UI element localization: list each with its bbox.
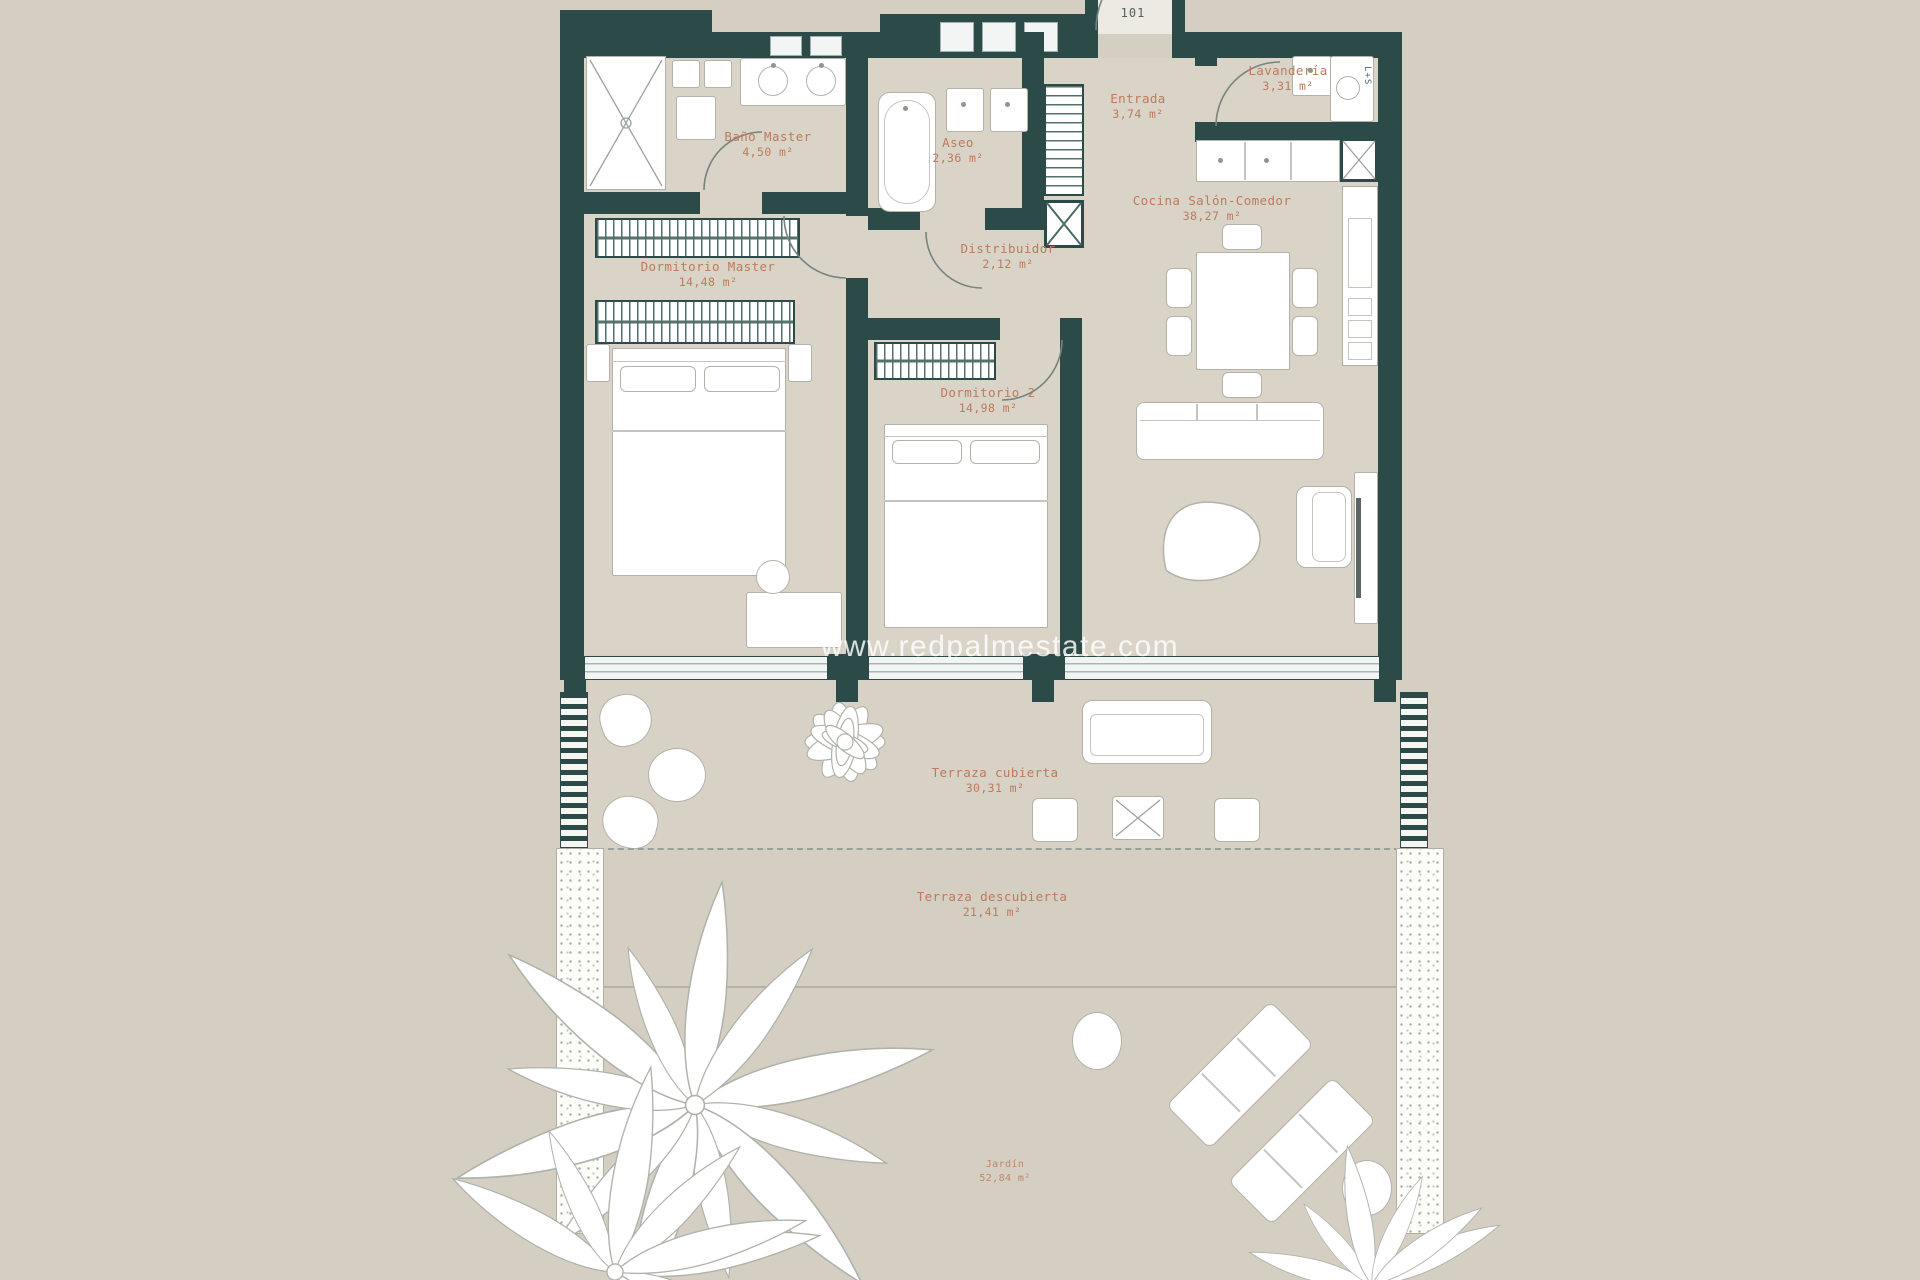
nightstand <box>586 344 610 382</box>
wall <box>868 318 1000 340</box>
washer-drum <box>1336 76 1360 100</box>
room-name: Entrada <box>1110 90 1165 107</box>
sink <box>758 66 788 96</box>
room-area: 38,27 m² <box>1133 209 1292 225</box>
drawer <box>1348 298 1372 316</box>
wall <box>762 192 846 214</box>
pier-stub <box>1374 680 1396 702</box>
room-area: 2,12 m² <box>960 257 1055 273</box>
shelving-unit <box>1044 84 1084 196</box>
garden-table <box>1072 1012 1122 1070</box>
window <box>770 36 802 56</box>
pouf <box>648 748 706 802</box>
room-name: Terraza descubierta <box>917 888 1068 905</box>
drawer <box>1348 342 1372 360</box>
toilet-flush <box>961 102 966 107</box>
shower-tray <box>586 56 666 190</box>
wardrobe <box>874 342 996 380</box>
floor-plan-canvas: L+S <box>0 0 1920 1280</box>
room-area: 52,84 m² <box>979 1172 1030 1186</box>
dining-chair <box>1292 268 1318 308</box>
desk-chair <box>756 560 790 594</box>
cabinet-knob <box>1264 158 1269 163</box>
cabinet-knob <box>1218 158 1223 163</box>
room-area: 30,31 m² <box>932 781 1059 797</box>
stone-column <box>1396 848 1444 1234</box>
dining-chair <box>1222 372 1262 398</box>
watermark: www.redpalmestate.com <box>821 630 1179 664</box>
dining-chair <box>1166 316 1192 356</box>
stone-column <box>556 848 604 1234</box>
bidet <box>990 88 1028 132</box>
room-label-bano-master: Baño Master 4,50 m² <box>724 128 811 161</box>
room-label-jardin: Jardín 52,84 m² <box>979 1158 1030 1186</box>
lounger-bar <box>1201 1073 1240 1112</box>
headboard <box>884 424 1048 437</box>
bathtub-basin <box>884 100 930 204</box>
sliding-window <box>584 656 828 680</box>
room-name: Cocina Salón-Comedor <box>1133 192 1292 209</box>
wall <box>1195 32 1217 66</box>
room-name: Baño Master <box>724 128 811 145</box>
tv <box>1356 498 1361 598</box>
kitchen-shaft <box>1340 138 1378 182</box>
terrace-side-wall <box>560 692 588 848</box>
room-name: Lavandería <box>1248 62 1327 79</box>
lounger-bar <box>1263 1149 1302 1188</box>
faucet <box>819 63 824 68</box>
fridge <box>1348 218 1372 288</box>
dining-chair <box>1292 316 1318 356</box>
entry-post <box>1085 0 1098 58</box>
faucet <box>771 63 776 68</box>
wall <box>1185 32 1402 58</box>
sofa-cushion-divider <box>1256 404 1258 420</box>
pillow <box>892 440 962 464</box>
drawer <box>1348 320 1372 338</box>
entry-post <box>1172 0 1185 58</box>
room-label-aseo: Aseo 2,36 m² <box>932 134 983 167</box>
dining-table <box>1196 252 1290 370</box>
terrace-divider-line <box>588 848 1400 850</box>
blanket-fold <box>884 500 1048 502</box>
bidet-drain <box>1005 102 1010 107</box>
dining-chair <box>1222 224 1262 250</box>
room-area: 3,31 m² <box>1248 79 1327 95</box>
room-name: Aseo <box>932 134 983 151</box>
room-area: 3,74 m² <box>1110 107 1165 123</box>
side-table <box>1032 798 1078 842</box>
pillow <box>970 440 1040 464</box>
window <box>982 22 1016 52</box>
pier-stub <box>836 680 858 702</box>
room-area: 14,98 m² <box>940 401 1035 417</box>
window <box>810 36 842 56</box>
wardrobe <box>595 218 800 258</box>
wall <box>1060 340 1082 654</box>
washer-label: L+S <box>1362 66 1372 85</box>
sofa-cushion-divider <box>1196 404 1198 420</box>
room-name: Terraza cubierta <box>932 764 1059 781</box>
dining-chair <box>1166 268 1192 308</box>
room-label-dormitorio-2: Dormitorio 2 14,98 m² <box>940 384 1035 417</box>
nightstand <box>788 344 812 382</box>
wall <box>584 192 700 214</box>
room-label-terraza-descubierta: Terraza descubierta 21,41 m² <box>917 888 1068 921</box>
garden-boundary <box>604 986 1396 988</box>
room-label-cocina-salon: Cocina Salón-Comedor 38,27 m² <box>1133 192 1292 225</box>
wall <box>1060 318 1082 340</box>
room-label-terraza-cubierta: Terraza cubierta 30,31 m² <box>932 764 1059 797</box>
wall <box>560 10 712 58</box>
side-table-x <box>1112 796 1164 840</box>
bathroom-shelf <box>704 60 732 88</box>
lounger-bar <box>1236 1038 1275 1077</box>
sofa-back <box>1140 404 1320 421</box>
armchair-seat <box>1312 492 1346 562</box>
room-label-lavanderia: Lavandería 3,31 m² <box>1248 62 1327 95</box>
toilet <box>946 88 984 132</box>
pier <box>1378 654 1402 680</box>
window <box>940 22 974 52</box>
side-table <box>1214 798 1260 842</box>
wardrobe <box>595 300 795 344</box>
room-area: 21,41 m² <box>917 905 1068 921</box>
terrace-sofa-seat <box>1090 714 1204 756</box>
room-name: Dormitorio 2 <box>940 384 1035 401</box>
wall-left <box>560 58 584 656</box>
room-name: Jardín <box>979 1158 1030 1172</box>
wall <box>846 32 868 216</box>
blanket-fold <box>612 430 786 432</box>
headboard <box>612 348 786 362</box>
pier <box>560 654 584 680</box>
counter-divider <box>1290 142 1292 180</box>
pillow <box>704 366 780 392</box>
room-name: Dormitorio Master <box>641 258 776 275</box>
palm-tree-lower <box>409 1035 850 1280</box>
terrace-side-wall <box>1400 692 1428 848</box>
lounger-bar <box>1298 1114 1337 1153</box>
palm-tree-large <box>450 880 937 1280</box>
counter-divider <box>1244 142 1246 180</box>
room-label-entrada: Entrada 3,74 m² <box>1110 90 1165 123</box>
room-label-distribuidor: Distribuidor 2,12 m² <box>960 240 1055 273</box>
room-area: 14,48 m² <box>641 275 776 291</box>
wall <box>846 278 868 654</box>
laundry-basket <box>676 96 716 140</box>
sink <box>806 66 836 96</box>
bathroom-shelf <box>672 60 700 88</box>
room-area: 4,50 m² <box>724 145 811 161</box>
wall-right <box>1378 58 1402 656</box>
pillow <box>620 366 696 392</box>
apartment-door-number: 101 <box>1121 6 1146 20</box>
faucet <box>903 106 908 111</box>
room-name: Distribuidor <box>960 240 1055 257</box>
room-label-dormitorio-master: Dormitorio Master 14,48 m² <box>641 258 776 291</box>
pier-stub <box>1032 680 1054 702</box>
garden-table <box>1342 1160 1392 1216</box>
room-area: 2,36 m² <box>932 151 983 167</box>
